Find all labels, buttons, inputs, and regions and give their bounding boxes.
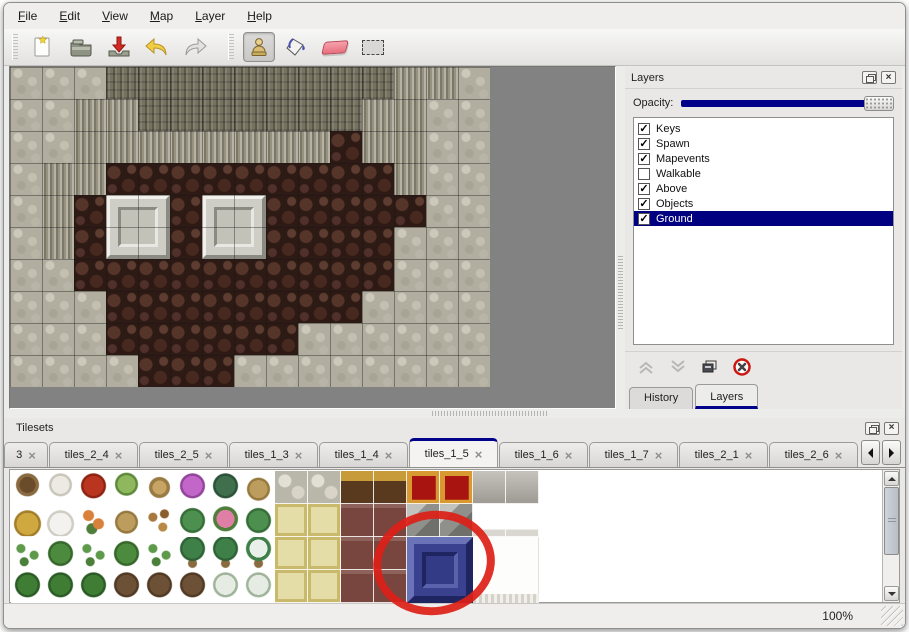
map-tile[interactable] [298,131,330,163]
map-tile[interactable] [42,323,74,355]
map-tile[interactable] [170,163,202,195]
layer-row[interactable]: ✓Mapevents [634,151,893,166]
tab-label: 3 [16,449,22,461]
map-tile[interactable] [426,99,458,131]
tileset-tile[interactable] [242,570,275,603]
tileset-tile[interactable] [275,471,308,504]
menu-layer[interactable]: Layer [195,9,225,23]
map-tile[interactable] [10,99,42,131]
tilesets-panel-titlebar[interactable]: Tilesets × [4,418,905,438]
menu-file[interactable]: File [18,9,37,23]
map-tile[interactable] [138,323,170,355]
zoom-level: 100% [822,609,853,623]
tileset-tile[interactable] [209,471,242,504]
map-tile[interactable] [330,259,362,291]
map-tile[interactable] [74,227,106,259]
tab-close-icon[interactable]: × [295,449,303,462]
map-tile[interactable] [458,259,490,291]
tileset-tile[interactable] [308,504,341,537]
tab-close-icon[interactable]: × [475,448,483,461]
move-layer-down-button[interactable] [667,356,689,378]
map-tile[interactable] [362,131,394,163]
white-big-tile[interactable] [473,537,539,603]
map-tile[interactable] [266,131,298,163]
layer-list[interactable]: ✓Keys✓Spawn✓MapeventsWalkable✓Above✓Obje… [633,117,894,345]
tileset-tile[interactable] [440,471,473,504]
map-tile[interactable] [74,131,106,163]
toolbar-drag-handle[interactable] [228,34,234,60]
map-tile[interactable] [106,291,138,323]
tileset-tile[interactable] [374,471,407,504]
map-tile[interactable] [42,291,74,323]
tileset-tile[interactable] [11,504,44,537]
tileset-tile[interactable] [341,504,374,537]
tab-close-icon[interactable]: × [745,449,753,462]
map-tile[interactable] [234,259,266,291]
map-tile[interactable] [106,67,138,99]
map-tile[interactable] [362,227,394,259]
map-tile[interactable] [266,323,298,355]
tileset-tab-tiles_1_5[interactable]: tiles_1_5× [409,438,498,467]
map-tile[interactable] [362,259,394,291]
map-tile[interactable] [234,323,266,355]
map-tile[interactable] [74,259,106,291]
map-tile[interactable] [106,131,138,163]
map-tile[interactable] [42,163,74,195]
scrollbar-thumb[interactable] [884,487,899,555]
tab-close-icon[interactable]: × [115,449,123,462]
float-panel-button[interactable] [862,71,877,84]
map-tile[interactable] [42,131,74,163]
map-tile[interactable] [138,259,170,291]
map-tile[interactable] [426,131,458,163]
map-tile[interactable] [170,195,202,227]
tileset-tile[interactable] [275,537,308,570]
select-tool-button[interactable] [357,32,389,62]
tileset-tile[interactable] [176,570,209,603]
tileset-tile[interactable] [308,471,341,504]
tileset-tile[interactable] [143,537,176,570]
tab-label: tiles_1_5 [425,448,469,460]
open-button[interactable] [65,32,97,62]
tab-label: tiles_1_4 [335,449,379,461]
map-tile[interactable] [298,323,330,355]
opacity-slider-handle[interactable] [864,96,894,111]
tab-label: tiles_1_6 [515,449,559,461]
map-tile[interactable] [394,227,426,259]
map-tile[interactable] [266,291,298,323]
tileset-tile[interactable] [374,537,407,570]
map-tile[interactable] [298,259,330,291]
layer-visibility-checkbox[interactable]: ✓ [638,198,650,210]
menu-map[interactable]: Map [150,9,173,23]
map-tile[interactable] [106,259,138,291]
map-tile[interactable] [426,195,458,227]
tileset-tile[interactable] [77,570,110,603]
map-tile[interactable] [362,355,394,387]
map-tile[interactable] [106,163,138,195]
layer-row[interactable]: ✓Ground [634,211,893,226]
tileset-tile[interactable] [341,537,374,570]
scroll-tabs-right-button[interactable] [882,440,901,465]
map-tile[interactable] [170,355,202,387]
tileset-tile[interactable] [44,570,77,603]
map-tile[interactable] [330,99,362,131]
map-canvas[interactable] [9,66,616,409]
opacity-slider[interactable] [681,95,894,111]
map-tile[interactable] [394,355,426,387]
map-tile[interactable] [394,323,426,355]
map-tile[interactable] [266,67,298,99]
close-panel-button[interactable]: × [884,422,899,435]
map-tile[interactable] [234,67,266,99]
stamp-person-icon [248,36,270,58]
tileset-tab-tiles_1_7[interactable]: tiles_1_7× [589,442,678,467]
tileset-tile[interactable] [341,471,374,504]
new-file-button[interactable] [27,32,59,62]
map-tile[interactable] [10,131,42,163]
tileset-tab-tiles_2_6[interactable]: tiles_2_6× [769,442,858,467]
layer-row[interactable]: ✓Spawn [634,136,893,151]
map-tile[interactable] [298,227,330,259]
map-platform-tile[interactable] [106,195,170,259]
map-tile[interactable] [234,163,266,195]
delete-layer-button[interactable] [731,356,753,378]
tileset-tile[interactable] [44,471,77,504]
map-tile[interactable] [202,259,234,291]
map-tile[interactable] [458,131,490,163]
eraser-tool-button[interactable] [319,32,351,62]
map-tile[interactable] [362,195,394,227]
tileset-tile[interactable] [209,537,242,570]
map-tile[interactable] [394,195,426,227]
tileset-tab-bar: 3×tiles_2_4×tiles_2_5×tiles_1_3×tiles_1_… [4,438,905,468]
menu-edit[interactable]: Edit [59,9,80,23]
tileset-tile[interactable] [242,537,275,570]
map-tile[interactable] [426,355,458,387]
map-tile[interactable] [426,163,458,195]
map-tile[interactable] [458,67,490,99]
layer-row[interactable]: Walkable [634,166,893,181]
tileset-tile[interactable] [176,471,209,504]
layer-visibility-checkbox[interactable]: ✓ [638,123,650,135]
layers-panel-titlebar[interactable]: Layers × [625,67,902,89]
tileset-tile[interactable] [77,537,110,570]
map-tile[interactable] [426,227,458,259]
tab-close-icon[interactable]: × [205,449,213,462]
tileset-tile[interactable] [242,471,275,504]
map-tile[interactable] [202,323,234,355]
save-download-icon [106,35,132,59]
opacity-slider-track [681,100,892,107]
tab-layers[interactable]: Layers [695,384,758,409]
tileset-tile[interactable] [473,504,506,537]
map-tile[interactable] [426,291,458,323]
scroll-down-button[interactable] [884,586,899,601]
map-tile[interactable] [170,67,202,99]
map-tile[interactable] [298,99,330,131]
tab-close-icon[interactable]: × [565,449,573,462]
map-tile[interactable] [10,195,42,227]
map-tile[interactable] [298,195,330,227]
map-tile[interactable] [458,291,490,323]
horizontal-splitter[interactable] [4,409,905,418]
map-tile[interactable] [362,99,394,131]
map-tile[interactable] [394,99,426,131]
map-tile[interactable] [106,323,138,355]
map-platform-tile[interactable] [202,195,266,259]
map-tile[interactable] [74,99,106,131]
map-tile[interactable] [426,67,458,99]
chevron-up-icon [637,359,655,375]
tab-close-icon[interactable]: × [835,449,843,462]
map-tile[interactable] [10,259,42,291]
layer-name: Objects [656,198,693,210]
map-tile[interactable] [170,323,202,355]
map-tile[interactable] [330,291,362,323]
close-panel-button[interactable]: × [881,71,896,84]
map-tile[interactable] [394,163,426,195]
map-tile[interactable] [394,291,426,323]
tileset-scrollbar[interactable] [882,470,899,602]
map-tile[interactable] [330,323,362,355]
tileset-tile[interactable] [341,570,374,603]
map-tile[interactable] [170,259,202,291]
scroll-up-button[interactable] [884,471,899,486]
tileset-tile[interactable] [110,570,143,603]
stamp-tool-button[interactable] [243,32,275,62]
tileset-tile[interactable] [275,504,308,537]
map-tile[interactable] [330,67,362,99]
selected-blue-tile[interactable] [407,537,473,603]
map-tile[interactable] [234,131,266,163]
triangle-right-icon [889,448,894,458]
map-tile[interactable] [170,227,202,259]
map-tile[interactable] [74,195,106,227]
toolbar-drag-handle[interactable] [12,34,18,60]
duplicate-layer-button[interactable] [699,356,721,378]
tileset-tile[interactable] [143,504,176,537]
fill-tool-button[interactable] [281,32,313,62]
map-tile[interactable] [10,291,42,323]
tileset-tile[interactable] [44,504,77,537]
map-tile[interactable] [234,99,266,131]
open-folder-icon [68,35,94,59]
map-tile[interactable] [10,323,42,355]
map-tile[interactable] [330,227,362,259]
layer-visibility-checkbox[interactable]: ✓ [638,138,650,150]
tileset-tile[interactable] [44,537,77,570]
map-tile[interactable] [202,163,234,195]
map-tile[interactable] [458,227,490,259]
map-tile[interactable] [298,355,330,387]
map-tile[interactable] [42,259,74,291]
tileset-tile[interactable] [11,471,44,504]
map-tile[interactable] [266,163,298,195]
move-layer-up-button[interactable] [635,356,657,378]
map-tile[interactable] [394,259,426,291]
tileset-tab-tiles_1_4[interactable]: tiles_1_4× [319,442,408,467]
map-tile[interactable] [170,131,202,163]
map-tile[interactable] [330,355,362,387]
tileset-tab-tiles_1_3[interactable]: tiles_1_3× [229,442,318,467]
tileset-tile[interactable] [506,504,539,537]
tab-close-icon[interactable]: × [655,449,663,462]
tileset-tile[interactable] [473,471,506,504]
tab-label: tiles_1_7 [605,449,649,461]
map-tile[interactable] [106,355,138,387]
map-tile[interactable] [138,67,170,99]
tileset-tile[interactable] [275,570,308,603]
map-tile[interactable] [394,67,426,99]
map-tile[interactable] [202,291,234,323]
tileset-tab-tiles_2_1[interactable]: tiles_2_1× [679,442,768,467]
vertical-splitter[interactable] [617,66,625,409]
tileset-content[interactable] [9,469,900,603]
tileset-tile[interactable] [506,471,539,504]
map-tile[interactable] [10,67,42,99]
map-tile[interactable] [138,131,170,163]
map-tile[interactable] [266,259,298,291]
map-tile[interactable] [426,323,458,355]
map-tile[interactable] [266,355,298,387]
tab-close-icon[interactable]: × [385,449,393,462]
map-tile[interactable] [202,99,234,131]
map-tile[interactable] [362,291,394,323]
map-tile[interactable] [74,355,106,387]
map-tile[interactable] [458,323,490,355]
tab-label: tiles_2_5 [155,449,199,461]
map-tile[interactable] [458,195,490,227]
map-tile[interactable] [10,355,42,387]
map-tile[interactable] [170,99,202,131]
map-tile[interactable] [42,67,74,99]
tileset-tile[interactable] [374,570,407,603]
map-tile[interactable] [10,227,42,259]
tileset-tab-3[interactable]: 3× [4,442,48,467]
tileset-tile[interactable] [143,570,176,603]
map-tile[interactable] [202,131,234,163]
map-tile[interactable] [234,291,266,323]
map-tile[interactable] [42,195,74,227]
map-tile[interactable] [298,67,330,99]
map-tile[interactable] [74,163,106,195]
map-tile[interactable] [138,355,170,387]
map-tile[interactable] [42,99,74,131]
undo-button[interactable] [141,32,173,62]
map-tile[interactable] [74,323,106,355]
map-tile[interactable] [234,355,266,387]
tileset-tile[interactable] [308,537,341,570]
layer-row[interactable]: ✓Objects [634,196,893,211]
map-tile[interactable] [74,291,106,323]
tilesets-panel-title: Tilesets [16,422,861,434]
tileset-tile[interactable] [77,471,110,504]
menu-help[interactable]: Help [247,9,272,23]
close-icon: × [889,423,895,433]
map-tile[interactable] [138,163,170,195]
map-tile[interactable] [362,67,394,99]
tileset-tile[interactable] [11,570,44,603]
layer-visibility-checkbox[interactable]: ✓ [638,183,650,195]
map-tile[interactable] [138,99,170,131]
save-button[interactable] [103,32,135,62]
map-tile[interactable] [202,355,234,387]
map-tile[interactable] [42,227,74,259]
tileset-tab-tiles_2_5[interactable]: tiles_2_5× [139,442,228,467]
map-tile[interactable] [298,163,330,195]
tileset-tab-tiles_2_4[interactable]: tiles_2_4× [49,442,138,467]
map-tile[interactable] [362,163,394,195]
map-tile[interactable] [330,163,362,195]
tab-history[interactable]: History [629,387,693,409]
map-tile[interactable] [10,163,42,195]
map-tile[interactable] [202,67,234,99]
tileset-tile[interactable] [407,471,440,504]
tileset-tile[interactable] [374,504,407,537]
layer-row[interactable]: ✓Above [634,181,893,196]
map-tile[interactable] [170,291,202,323]
map-tile[interactable] [266,195,298,227]
tileset-tile[interactable] [77,504,110,537]
float-panel-button[interactable] [865,422,880,435]
tileset-tile[interactable] [143,471,176,504]
map-tile[interactable] [458,99,490,131]
chevron-down-icon [669,359,687,375]
tileset-tile[interactable] [209,570,242,603]
tileset-tile[interactable] [308,570,341,603]
tileset-tile[interactable] [407,504,440,537]
scroll-tabs-left-button[interactable] [861,440,880,465]
tileset-tile[interactable] [110,504,143,537]
new-document-icon [31,35,55,59]
window-resize-grip[interactable] [881,606,903,626]
tab-close-icon[interactable]: × [28,449,36,462]
map-tile[interactable] [362,323,394,355]
menu-view[interactable]: View [102,9,128,23]
map-tile[interactable] [266,99,298,131]
map-tile[interactable] [330,195,362,227]
tileset-tile[interactable] [440,504,473,537]
redo-button[interactable] [179,32,211,62]
map-tile[interactable] [298,291,330,323]
map-tile[interactable] [458,355,490,387]
tileset-tile[interactable] [176,537,209,570]
layer-visibility-checkbox[interactable]: ✓ [638,153,650,165]
tileset-tile[interactable] [110,471,143,504]
map-tile[interactable] [330,131,362,163]
map-tile[interactable] [138,291,170,323]
tileset-tab-tiles_1_6[interactable]: tiles_1_6× [499,442,588,467]
map-tile[interactable] [458,163,490,195]
tileset-tile[interactable] [209,504,242,537]
layer-visibility-checkbox[interactable]: ✓ [638,213,650,225]
tileset-tile[interactable] [11,537,44,570]
map-tile[interactable] [266,227,298,259]
layer-row[interactable]: ✓Keys [634,121,893,136]
layer-visibility-checkbox[interactable] [638,168,650,180]
tileset-tile[interactable] [176,504,209,537]
map-tile[interactable] [74,67,106,99]
map-tile[interactable] [106,99,138,131]
map-tile[interactable] [394,131,426,163]
tileset-tile[interactable] [242,504,275,537]
float-icon [869,425,877,432]
map-tile[interactable] [42,355,74,387]
tileset-tile[interactable] [110,537,143,570]
map-tile[interactable] [426,259,458,291]
triangle-left-icon [868,448,873,458]
